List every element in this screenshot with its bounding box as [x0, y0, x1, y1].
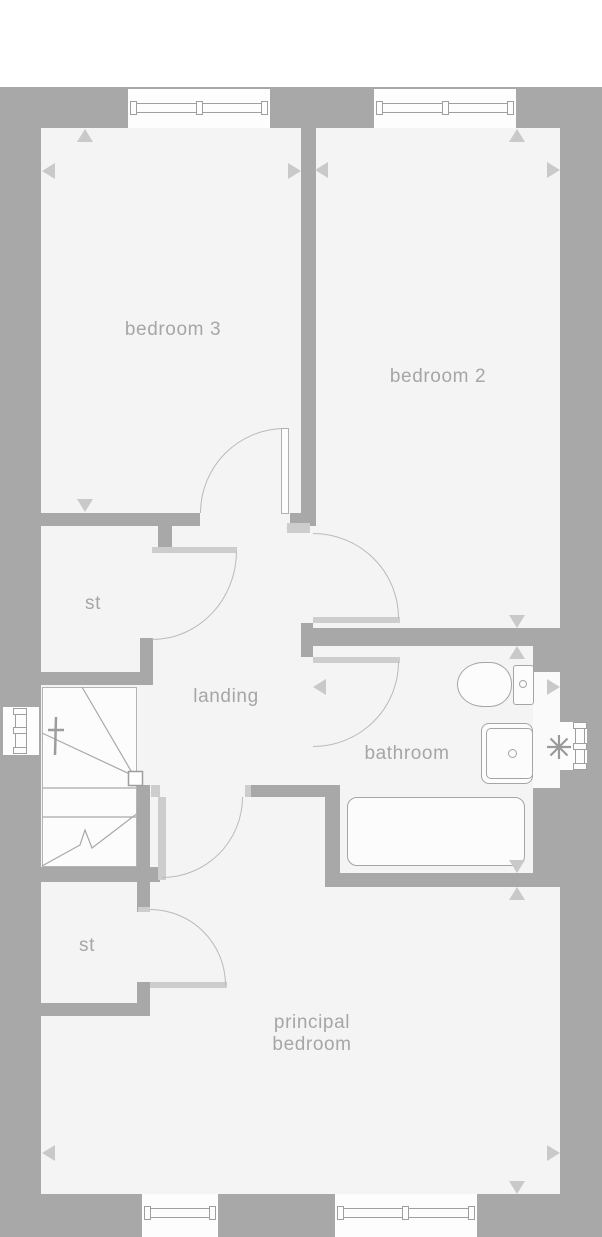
- dimension-arrow-down: [509, 860, 525, 873]
- room-label-bathroom: bathroom: [364, 743, 449, 765]
- room-label-line: principal: [272, 1012, 351, 1034]
- window-mullion: [261, 101, 268, 115]
- wall-segment: [533, 788, 560, 873]
- wall-segment: [41, 513, 200, 526]
- window-stairs: [3, 707, 39, 755]
- dimension-arrow-up: [77, 129, 93, 142]
- wall-segment: [301, 628, 560, 646]
- dimension-arrow-up: [509, 129, 525, 142]
- glazing-line: [145, 1208, 215, 1209]
- sink-icon: [481, 723, 533, 784]
- window-mullion: [13, 747, 27, 754]
- window-mullion: [13, 727, 27, 734]
- wall-segment: [137, 785, 150, 870]
- dimension-arrow-left: [315, 162, 328, 178]
- wall-exterior-left: [0, 87, 41, 1237]
- window-bedroom3: [128, 89, 270, 128]
- window-bedroom2: [374, 89, 516, 128]
- window-mullion: [209, 1206, 216, 1220]
- floor-plan: bedroom 3 bedroom 2 st landing bathroom …: [0, 0, 602, 1237]
- dimension-arrow-up: [509, 887, 525, 900]
- window-principal-bedroom-right: [335, 1194, 477, 1237]
- window-mullion: [337, 1206, 344, 1220]
- door-threshold: [287, 523, 310, 533]
- dimension-arrow-left: [42, 163, 55, 179]
- dimension-arrow-down: [509, 615, 525, 628]
- bathtub-icon: [347, 797, 525, 866]
- window-mullion: [573, 722, 587, 729]
- wall-segment: [158, 525, 172, 549]
- room-label-storage-lower: st: [79, 935, 95, 957]
- wall-exterior-bottom: [0, 1194, 602, 1237]
- window-mullion: [13, 708, 27, 715]
- wall-exterior-right: [560, 87, 602, 1237]
- wall-segment: [325, 785, 340, 887]
- room-label-line: bedroom: [272, 1034, 351, 1056]
- glazing-line: [145, 1217, 215, 1218]
- toilet-flush-button: [519, 680, 527, 688]
- dimension-arrow-left: [313, 679, 326, 695]
- sink-drain: [508, 749, 517, 758]
- room-label-landing: landing: [193, 686, 258, 708]
- dimension-arrow-right: [547, 679, 560, 695]
- window-mullion: [468, 1206, 475, 1220]
- wall-segment: [325, 873, 560, 887]
- toilet-bowl: [457, 662, 512, 707]
- window-mullion: [130, 101, 137, 115]
- dimension-arrow-right: [547, 162, 560, 178]
- window-mullion: [196, 101, 203, 115]
- room-label-principal-bedroom: principal bedroom: [272, 1012, 351, 1056]
- dimension-arrow-left: [42, 1145, 55, 1161]
- window-mullion: [442, 101, 449, 115]
- staircase: [42, 687, 137, 867]
- door-leaf-bedroom3: [281, 428, 289, 514]
- newel-post: [129, 772, 143, 786]
- dimension-arrow-right: [547, 1145, 560, 1161]
- wall-segment: [38, 1003, 150, 1016]
- door-threshold: [245, 785, 251, 797]
- window-mullion: [376, 101, 383, 115]
- dimension-arrow-down: [509, 1181, 525, 1194]
- room-label-storage-upper: st: [85, 593, 101, 615]
- window-mullion: [507, 101, 514, 115]
- room-label-bedroom3: bedroom 3: [125, 319, 221, 341]
- window-mullion: [573, 763, 587, 770]
- dimension-arrow-up: [509, 646, 525, 659]
- window-principal-bedroom-left: [142, 1194, 218, 1237]
- window-mullion: [144, 1206, 151, 1220]
- wall-segment: [41, 672, 153, 685]
- obscured-glass-icon: [546, 734, 572, 760]
- window-mullion: [573, 743, 587, 750]
- wall-segment: [140, 638, 153, 672]
- wall-segment: [301, 623, 313, 657]
- room-label-bedroom2: bedroom 2: [390, 366, 486, 388]
- toilet-icon: [457, 662, 534, 708]
- wall-segment: [301, 128, 316, 526]
- dimension-arrow-down: [77, 499, 93, 512]
- window-mullion: [402, 1206, 409, 1220]
- wall-segment: [533, 628, 560, 672]
- door-threshold: [138, 907, 150, 912]
- dimension-arrow-right: [288, 163, 301, 179]
- door-threshold: [151, 785, 160, 797]
